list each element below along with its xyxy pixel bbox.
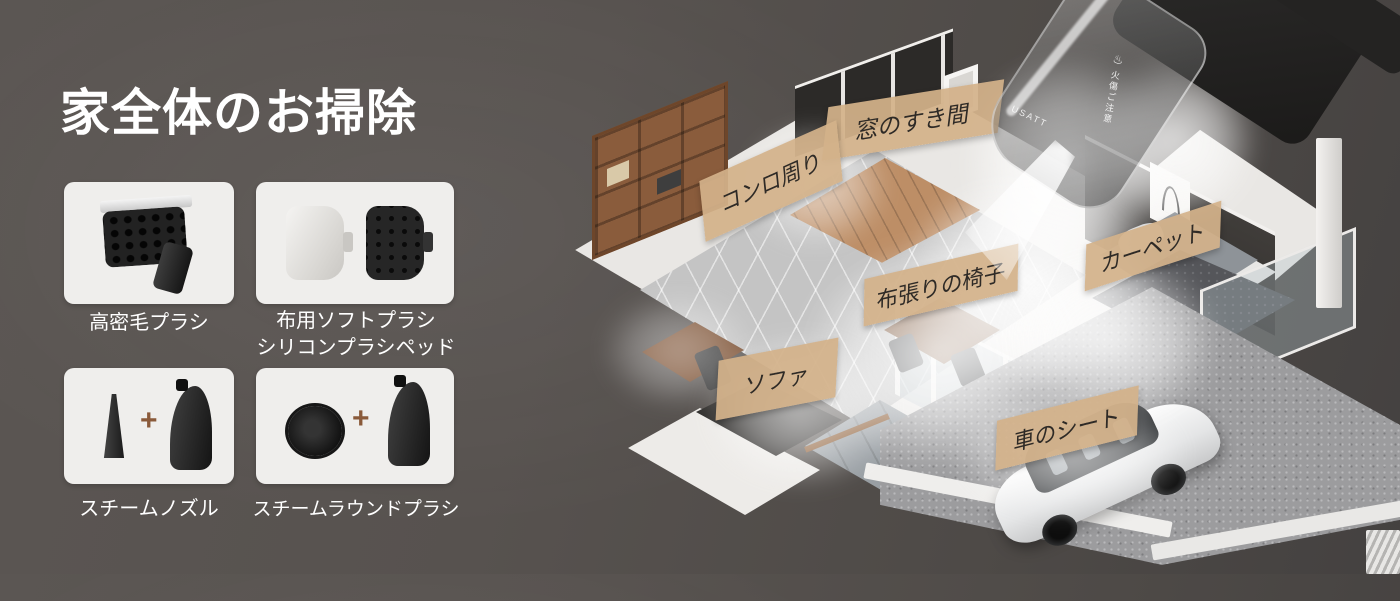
plus-sign: + bbox=[352, 402, 370, 436]
balcony-column bbox=[1316, 138, 1342, 308]
vent-block bbox=[1366, 530, 1400, 574]
page-title: 家全体のお掃除 bbox=[60, 86, 417, 141]
accessory-label-bristle-brush: 高密毛プラシ bbox=[64, 310, 234, 337]
books bbox=[657, 169, 681, 195]
warning-text: 火傷ご注意 bbox=[1100, 69, 1122, 125]
curved-nozzle-image bbox=[388, 382, 430, 466]
fabric-soft-pad-image bbox=[286, 206, 344, 280]
curved-nozzle-image bbox=[170, 386, 212, 470]
accessory-card-fabric-pads bbox=[256, 182, 454, 304]
plus-sign: + bbox=[140, 404, 158, 438]
callout-text: ソファ bbox=[744, 356, 811, 402]
storage-box bbox=[607, 160, 629, 187]
accessory-label-line1: 布用ソフトプラシ bbox=[236, 308, 476, 335]
steam-nozzle-tip-image bbox=[100, 394, 128, 458]
device-brand: USATT bbox=[1010, 104, 1049, 129]
round-brush-image bbox=[288, 406, 342, 456]
accessory-label-line2: シリコンプラシペッド bbox=[236, 335, 476, 362]
steam-caution-icon: ♨ bbox=[1112, 52, 1125, 68]
accessory-card-steam-nozzle: + bbox=[64, 368, 234, 484]
accessory-card-round-brush: + bbox=[256, 368, 454, 484]
accessory-label-steam-nozzle: スチームノズル bbox=[64, 496, 234, 523]
silicone-pad-image bbox=[366, 206, 424, 280]
callout-text: 窓のすき間 bbox=[854, 93, 972, 146]
accessory-label-fabric-pads: 布用ソフトプラシ シリコンプラシペッド bbox=[236, 308, 476, 362]
accessory-card-bristle-brush bbox=[64, 182, 234, 304]
accessory-label-round-brush: スチームラウンドプラシ bbox=[234, 496, 478, 523]
